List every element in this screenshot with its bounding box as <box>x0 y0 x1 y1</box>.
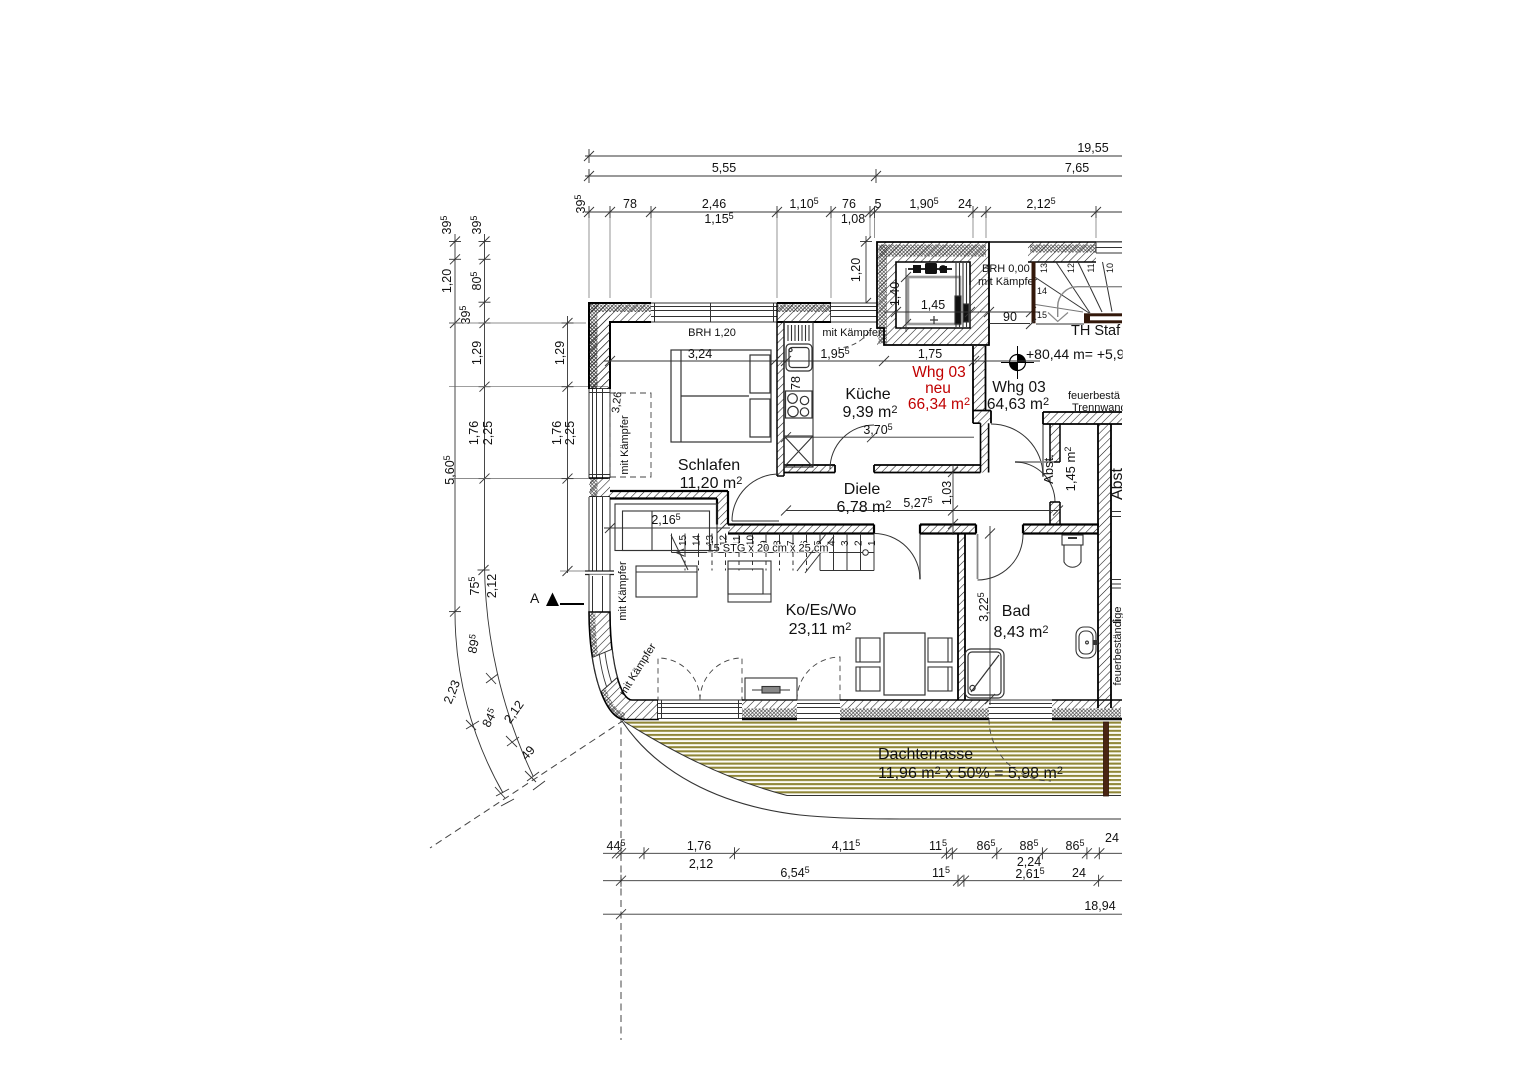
svg-text:1,45: 1,45 <box>921 298 945 312</box>
svg-text:9,39 m2: 9,39 m2 <box>842 404 897 421</box>
svg-text:Diele: Diele <box>844 481 881 498</box>
svg-text:2,25: 2,25 <box>481 421 495 445</box>
svg-text:11,96 m2 x 50% = 5,98 m2: 11,96 m2 x 50% = 5,98 m2 <box>878 765 1063 782</box>
svg-text:Whg 03: Whg 03 <box>912 364 965 381</box>
svg-text:1,08: 1,08 <box>841 212 865 226</box>
svg-text:3: 3 <box>840 540 851 546</box>
svg-text:2,25: 2,25 <box>563 421 577 445</box>
svg-text:15: 15 <box>678 534 689 546</box>
svg-text:1,03: 1,03 <box>940 481 954 505</box>
svg-text:2,12: 2,12 <box>485 574 499 598</box>
svg-text:mit Kämpfer: mit Kämpfer <box>617 561 629 621</box>
svg-text:neu: neu <box>925 380 951 397</box>
svg-text:1,75: 1,75 <box>918 347 942 361</box>
svg-text:5: 5 <box>875 197 882 211</box>
svg-text:Trennwand: Trennwand <box>1072 402 1127 414</box>
svg-text:11: 11 <box>1086 263 1096 272</box>
svg-text:13: 13 <box>1039 263 1049 273</box>
svg-text:78: 78 <box>789 376 803 390</box>
svg-text:feuerbeständige: feuerbeständige <box>1112 607 1124 686</box>
svg-text:A: A <box>530 590 540 606</box>
svg-text:Dachterrasse: Dachterrasse <box>878 746 973 763</box>
svg-text:1,45 m2: 1,45 m2 <box>1063 447 1078 492</box>
svg-text:2,46: 2,46 <box>702 197 726 211</box>
svg-text:BRH 1,20: BRH 1,20 <box>688 327 736 339</box>
svg-text:Schlafen: Schlafen <box>678 457 740 474</box>
svg-text:64,63 m2: 64,63 m2 <box>987 396 1049 413</box>
svg-text:11,20 m2: 11,20 m2 <box>680 475 743 492</box>
svg-text:6,78 m2: 6,78 m2 <box>836 499 891 516</box>
svg-text:15: 15 <box>1037 310 1047 320</box>
svg-text:5,55: 5,55 <box>712 161 736 175</box>
svg-text:Abst.: Abst. <box>1041 454 1056 484</box>
svg-text:Küche: Küche <box>845 386 890 403</box>
svg-text:19,55: 19,55 <box>1077 141 1108 155</box>
svg-text:mit Kämpfer: mit Kämpfer <box>978 276 1038 288</box>
svg-text:8,43 m2: 8,43 m2 <box>993 624 1048 641</box>
svg-text:+80,44 m= +5,9: +80,44 m= +5,9 <box>1026 346 1125 362</box>
svg-text:78: 78 <box>623 197 637 211</box>
svg-text:15 STG x 20 cm x 25 cm: 15 STG x 20 cm x 25 cm <box>707 543 828 555</box>
svg-text:1,20: 1,20 <box>440 269 454 293</box>
svg-text:12: 12 <box>1066 263 1076 273</box>
svg-text:feuerbestä: feuerbestä <box>1068 390 1121 402</box>
svg-text:66,34 m2: 66,34 m2 <box>908 396 970 413</box>
svg-text:1,29: 1,29 <box>470 341 484 365</box>
svg-text:90: 90 <box>1003 310 1017 324</box>
svg-text:10: 10 <box>1105 263 1115 273</box>
svg-text:24: 24 <box>958 197 972 211</box>
svg-text:18,94: 18,94 <box>1084 899 1115 913</box>
svg-text:1: 1 <box>867 540 878 546</box>
svg-text:Bad: Bad <box>1002 603 1030 620</box>
svg-text:24: 24 <box>1072 866 1086 880</box>
svg-text:24: 24 <box>1105 831 1119 845</box>
svg-text:TH Staf: TH Staf <box>1071 323 1121 339</box>
svg-text:mit Kämpfer: mit Kämpfer <box>619 415 631 475</box>
svg-text:1,76: 1,76 <box>467 421 481 445</box>
svg-text:1,20: 1,20 <box>849 258 863 282</box>
svg-text:BRH 0,00: BRH 0,00 <box>982 263 1030 275</box>
svg-text:Ko/Es/Wo: Ko/Es/Wo <box>786 602 857 619</box>
svg-text:2,12: 2,12 <box>689 857 713 871</box>
svg-text:mit Kämpfer: mit Kämpfer <box>822 327 882 339</box>
svg-text:Whg 03: Whg 03 <box>992 379 1045 396</box>
svg-text:7,65: 7,65 <box>1065 161 1089 175</box>
svg-text:14: 14 <box>1037 286 1047 296</box>
svg-text:1,40: 1,40 <box>888 282 902 306</box>
svg-text:1,76: 1,76 <box>550 421 564 445</box>
svg-text:2: 2 <box>854 540 865 546</box>
svg-text:23,11 m2: 23,11 m2 <box>789 621 852 638</box>
svg-text:1,76: 1,76 <box>687 839 711 853</box>
svg-text:76: 76 <box>842 197 856 211</box>
svg-text:1,29: 1,29 <box>553 341 567 365</box>
svg-text:3,24: 3,24 <box>688 347 712 361</box>
svg-text:14: 14 <box>692 534 703 546</box>
